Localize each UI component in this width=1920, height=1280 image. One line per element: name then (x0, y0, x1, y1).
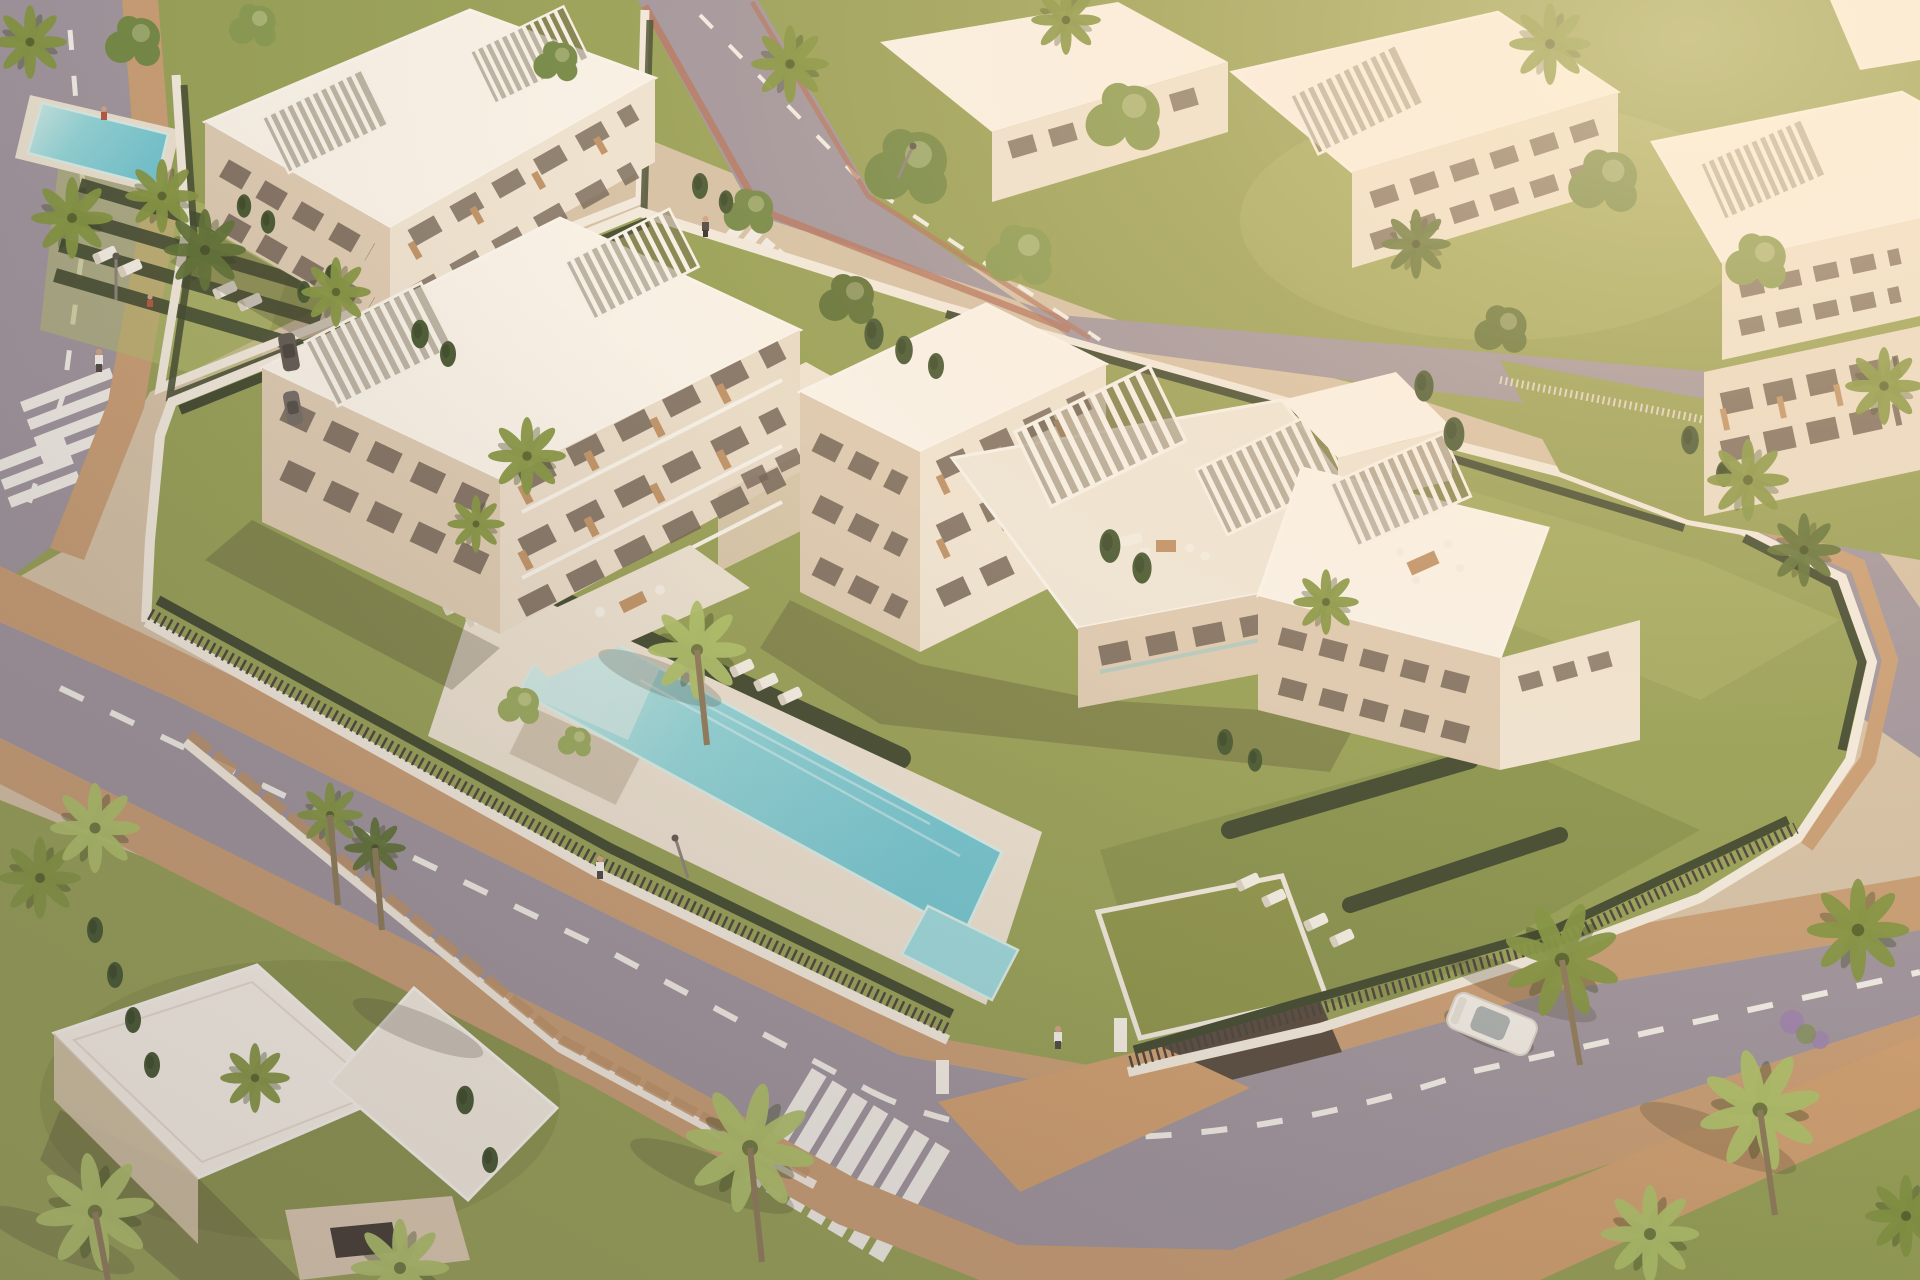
scene-canvas (0, 0, 1920, 1280)
atmosphere (0, 0, 1920, 1280)
vignette-overlay (0, 0, 1920, 1280)
aerial-render (0, 0, 1920, 1280)
